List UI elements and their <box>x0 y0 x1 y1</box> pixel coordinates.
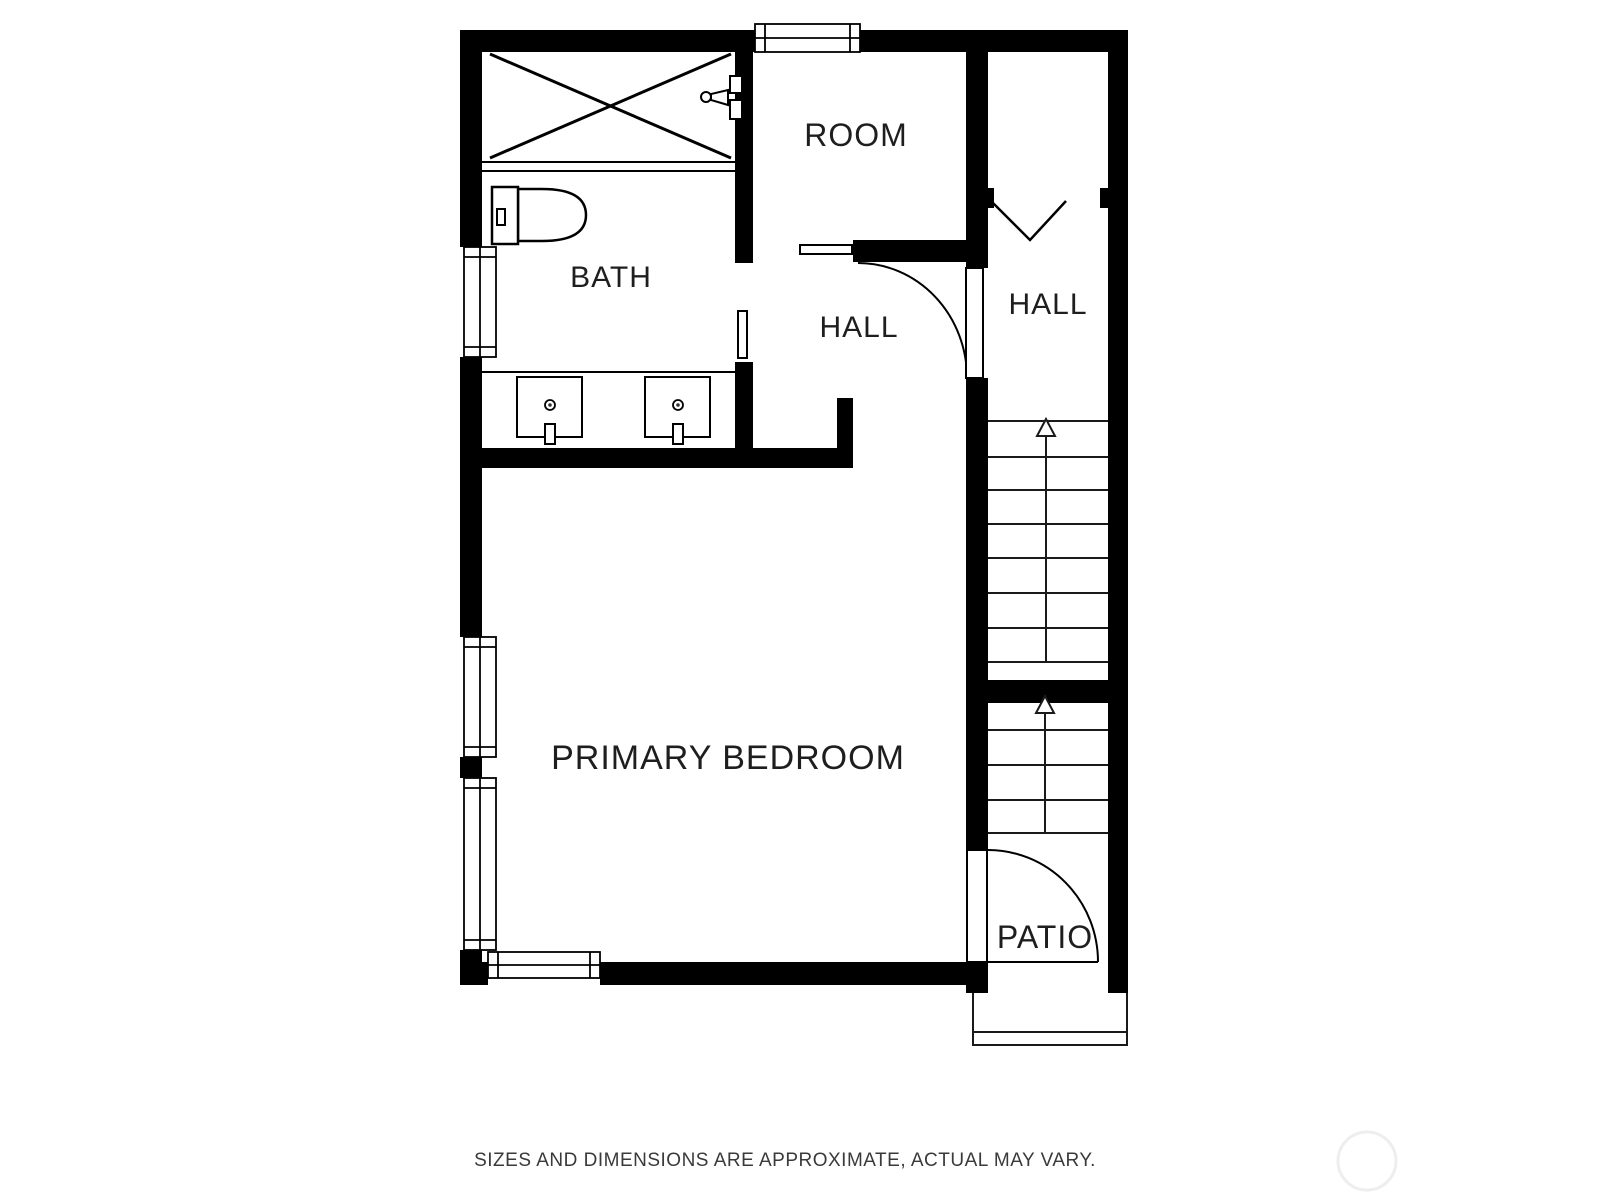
wall-bottom-left <box>460 962 488 985</box>
wall-bottom-right <box>600 962 988 985</box>
wall-right-jamb <box>1100 188 1108 208</box>
bedroom-window-upper <box>464 637 496 757</box>
wall-left-3 <box>460 757 482 778</box>
label-hall-stairs: HALL <box>1008 288 1087 321</box>
label-bath: BATH <box>570 261 652 294</box>
room-sliding-door <box>800 245 852 254</box>
bedroom-south-window <box>488 952 600 978</box>
wall-left-1 <box>460 30 482 247</box>
wall-divider-jamb <box>984 188 994 208</box>
floor-plan-canvas: ROOM BATH HALL HALL PRIMARY BEDROOM PATI… <box>0 0 1600 1200</box>
wall-divider-top <box>966 52 988 268</box>
footer-disclaimer: SIZES AND DIMENSIONS ARE APPROXIMATE, AC… <box>474 1150 1096 1171</box>
wall-left-2 <box>460 357 482 637</box>
bedroom-window-lower <box>464 778 496 950</box>
wall-hall-stub <box>837 398 853 468</box>
label-room: ROOM <box>804 117 908 153</box>
bath-pocket-door <box>738 311 747 358</box>
wall-top-left <box>460 30 755 52</box>
label-hall-inner: HALL <box>819 311 898 344</box>
bath-window <box>464 247 496 357</box>
page-background <box>0 0 1600 1200</box>
toilet-bowl <box>518 189 586 241</box>
toilet-button <box>497 209 505 225</box>
wall-right <box>1108 30 1128 993</box>
wall-bath-south <box>482 448 852 468</box>
wall-top-right <box>853 30 1128 52</box>
label-primary-bedroom: PRIMARY BEDROOM <box>551 739 905 777</box>
wall-divider-mid <box>966 378 988 852</box>
label-patio: PATIO <box>997 919 1093 955</box>
room-window <box>755 24 860 52</box>
toilet-icon <box>492 187 586 244</box>
wall-divider-bottom <box>966 962 988 993</box>
